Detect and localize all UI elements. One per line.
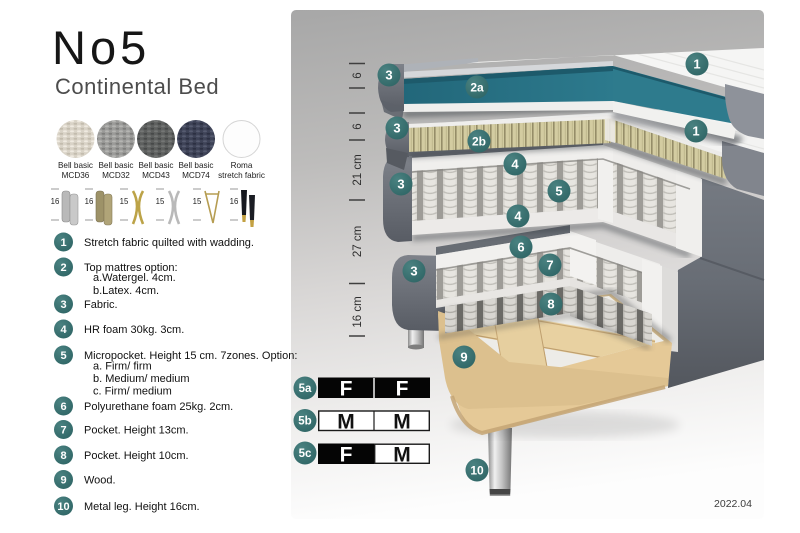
svg-text:Bell basic: Bell basic [98, 161, 133, 170]
svg-text:6: 6 [352, 72, 364, 78]
svg-text:2b: 2b [472, 134, 486, 148]
svg-text:Bell basic: Bell basic [138, 161, 173, 170]
svg-text:Polyurethane foam 25kg. 2cm.: Polyurethane foam 25kg. 2cm. [84, 401, 233, 413]
svg-text:5b: 5b [298, 416, 311, 428]
svg-text:1: 1 [692, 124, 699, 139]
svg-text:7: 7 [546, 258, 553, 273]
svg-text:HR foam 30kg. 3cm.: HR foam 30kg. 3cm. [84, 324, 184, 336]
svg-text:3: 3 [393, 121, 400, 136]
svg-text:9: 9 [60, 475, 66, 487]
svg-text:6: 6 [60, 401, 66, 413]
svg-text:1: 1 [693, 57, 700, 72]
svg-text:F: F [340, 444, 353, 467]
svg-text:4: 4 [514, 209, 522, 224]
svg-text:9: 9 [460, 350, 467, 365]
svg-text:M: M [393, 443, 411, 466]
svg-text:3: 3 [410, 264, 417, 279]
svg-text:15: 15 [193, 197, 202, 206]
svg-text:1: 1 [60, 237, 66, 249]
svg-text:5: 5 [60, 350, 66, 362]
svg-text:MCD36: MCD36 [62, 171, 90, 180]
svg-text:F: F [396, 378, 409, 401]
svg-text:16: 16 [51, 197, 60, 206]
svg-text:16: 16 [85, 197, 94, 206]
svg-text:Pocket. Height 13cm.: Pocket. Height 13cm. [84, 425, 189, 437]
svg-text:8: 8 [547, 297, 554, 312]
svg-text:M: M [337, 410, 355, 433]
svg-text:M: M [393, 410, 411, 433]
svg-text:Roma: Roma [231, 161, 253, 170]
svg-text:stretch fabric: stretch fabric [218, 171, 265, 180]
svg-text:Stretch fabric quilted with wa: Stretch fabric quilted with wadding. [84, 237, 254, 249]
svg-text:4: 4 [60, 324, 67, 336]
svg-text:b.Latex. 4cm.: b.Latex. 4cm. [93, 285, 159, 297]
svg-text:10: 10 [470, 463, 484, 477]
svg-text:Fabric.: Fabric. [84, 299, 118, 311]
svg-text:c. Firm/ medium: c. Firm/ medium [93, 386, 172, 398]
svg-text:5c: 5c [299, 448, 312, 460]
svg-text:5: 5 [555, 184, 562, 199]
svg-text:4: 4 [511, 157, 519, 172]
svg-text:2a: 2a [470, 80, 484, 94]
svg-text:21 cm: 21 cm [352, 154, 364, 185]
svg-text:a.Watergel. 4cm.: a.Watergel. 4cm. [93, 272, 176, 284]
svg-text:Metal leg. Height 16cm.: Metal leg. Height 16cm. [84, 501, 200, 513]
svg-text:15: 15 [156, 197, 165, 206]
svg-text:8: 8 [60, 450, 66, 462]
svg-text:Pocket. Height 10cm.: Pocket. Height 10cm. [84, 450, 189, 462]
svg-text:MCD43: MCD43 [142, 171, 170, 180]
svg-text:b. Medium/ medium: b. Medium/ medium [93, 373, 190, 385]
svg-text:3: 3 [385, 68, 392, 83]
svg-text:5a: 5a [299, 383, 312, 395]
svg-text:6: 6 [352, 123, 364, 129]
svg-text:15: 15 [120, 197, 129, 206]
svg-text:Wood.: Wood. [84, 475, 116, 487]
svg-text:Bell basic: Bell basic [178, 161, 213, 170]
svg-text:Bell basic: Bell basic [58, 161, 93, 170]
svg-text:3: 3 [397, 177, 404, 192]
svg-text:10: 10 [57, 501, 69, 513]
svg-text:Continental Bed: Continental Bed [55, 74, 219, 99]
svg-text:MCD74: MCD74 [182, 171, 210, 180]
svg-text:No5: No5 [52, 21, 150, 74]
svg-text:6: 6 [517, 240, 524, 255]
svg-text:16: 16 [230, 197, 239, 206]
svg-text:a. Firm/ firm: a. Firm/ firm [93, 361, 152, 373]
svg-text:27 cm: 27 cm [352, 226, 364, 257]
svg-text:2: 2 [60, 262, 66, 274]
svg-text:3: 3 [60, 299, 66, 311]
svg-text:MCD32: MCD32 [102, 171, 130, 180]
svg-text:2022.04: 2022.04 [714, 498, 752, 510]
svg-text:16 cm: 16 cm [352, 296, 364, 327]
svg-text:F: F [340, 378, 353, 401]
svg-text:7: 7 [60, 425, 66, 437]
